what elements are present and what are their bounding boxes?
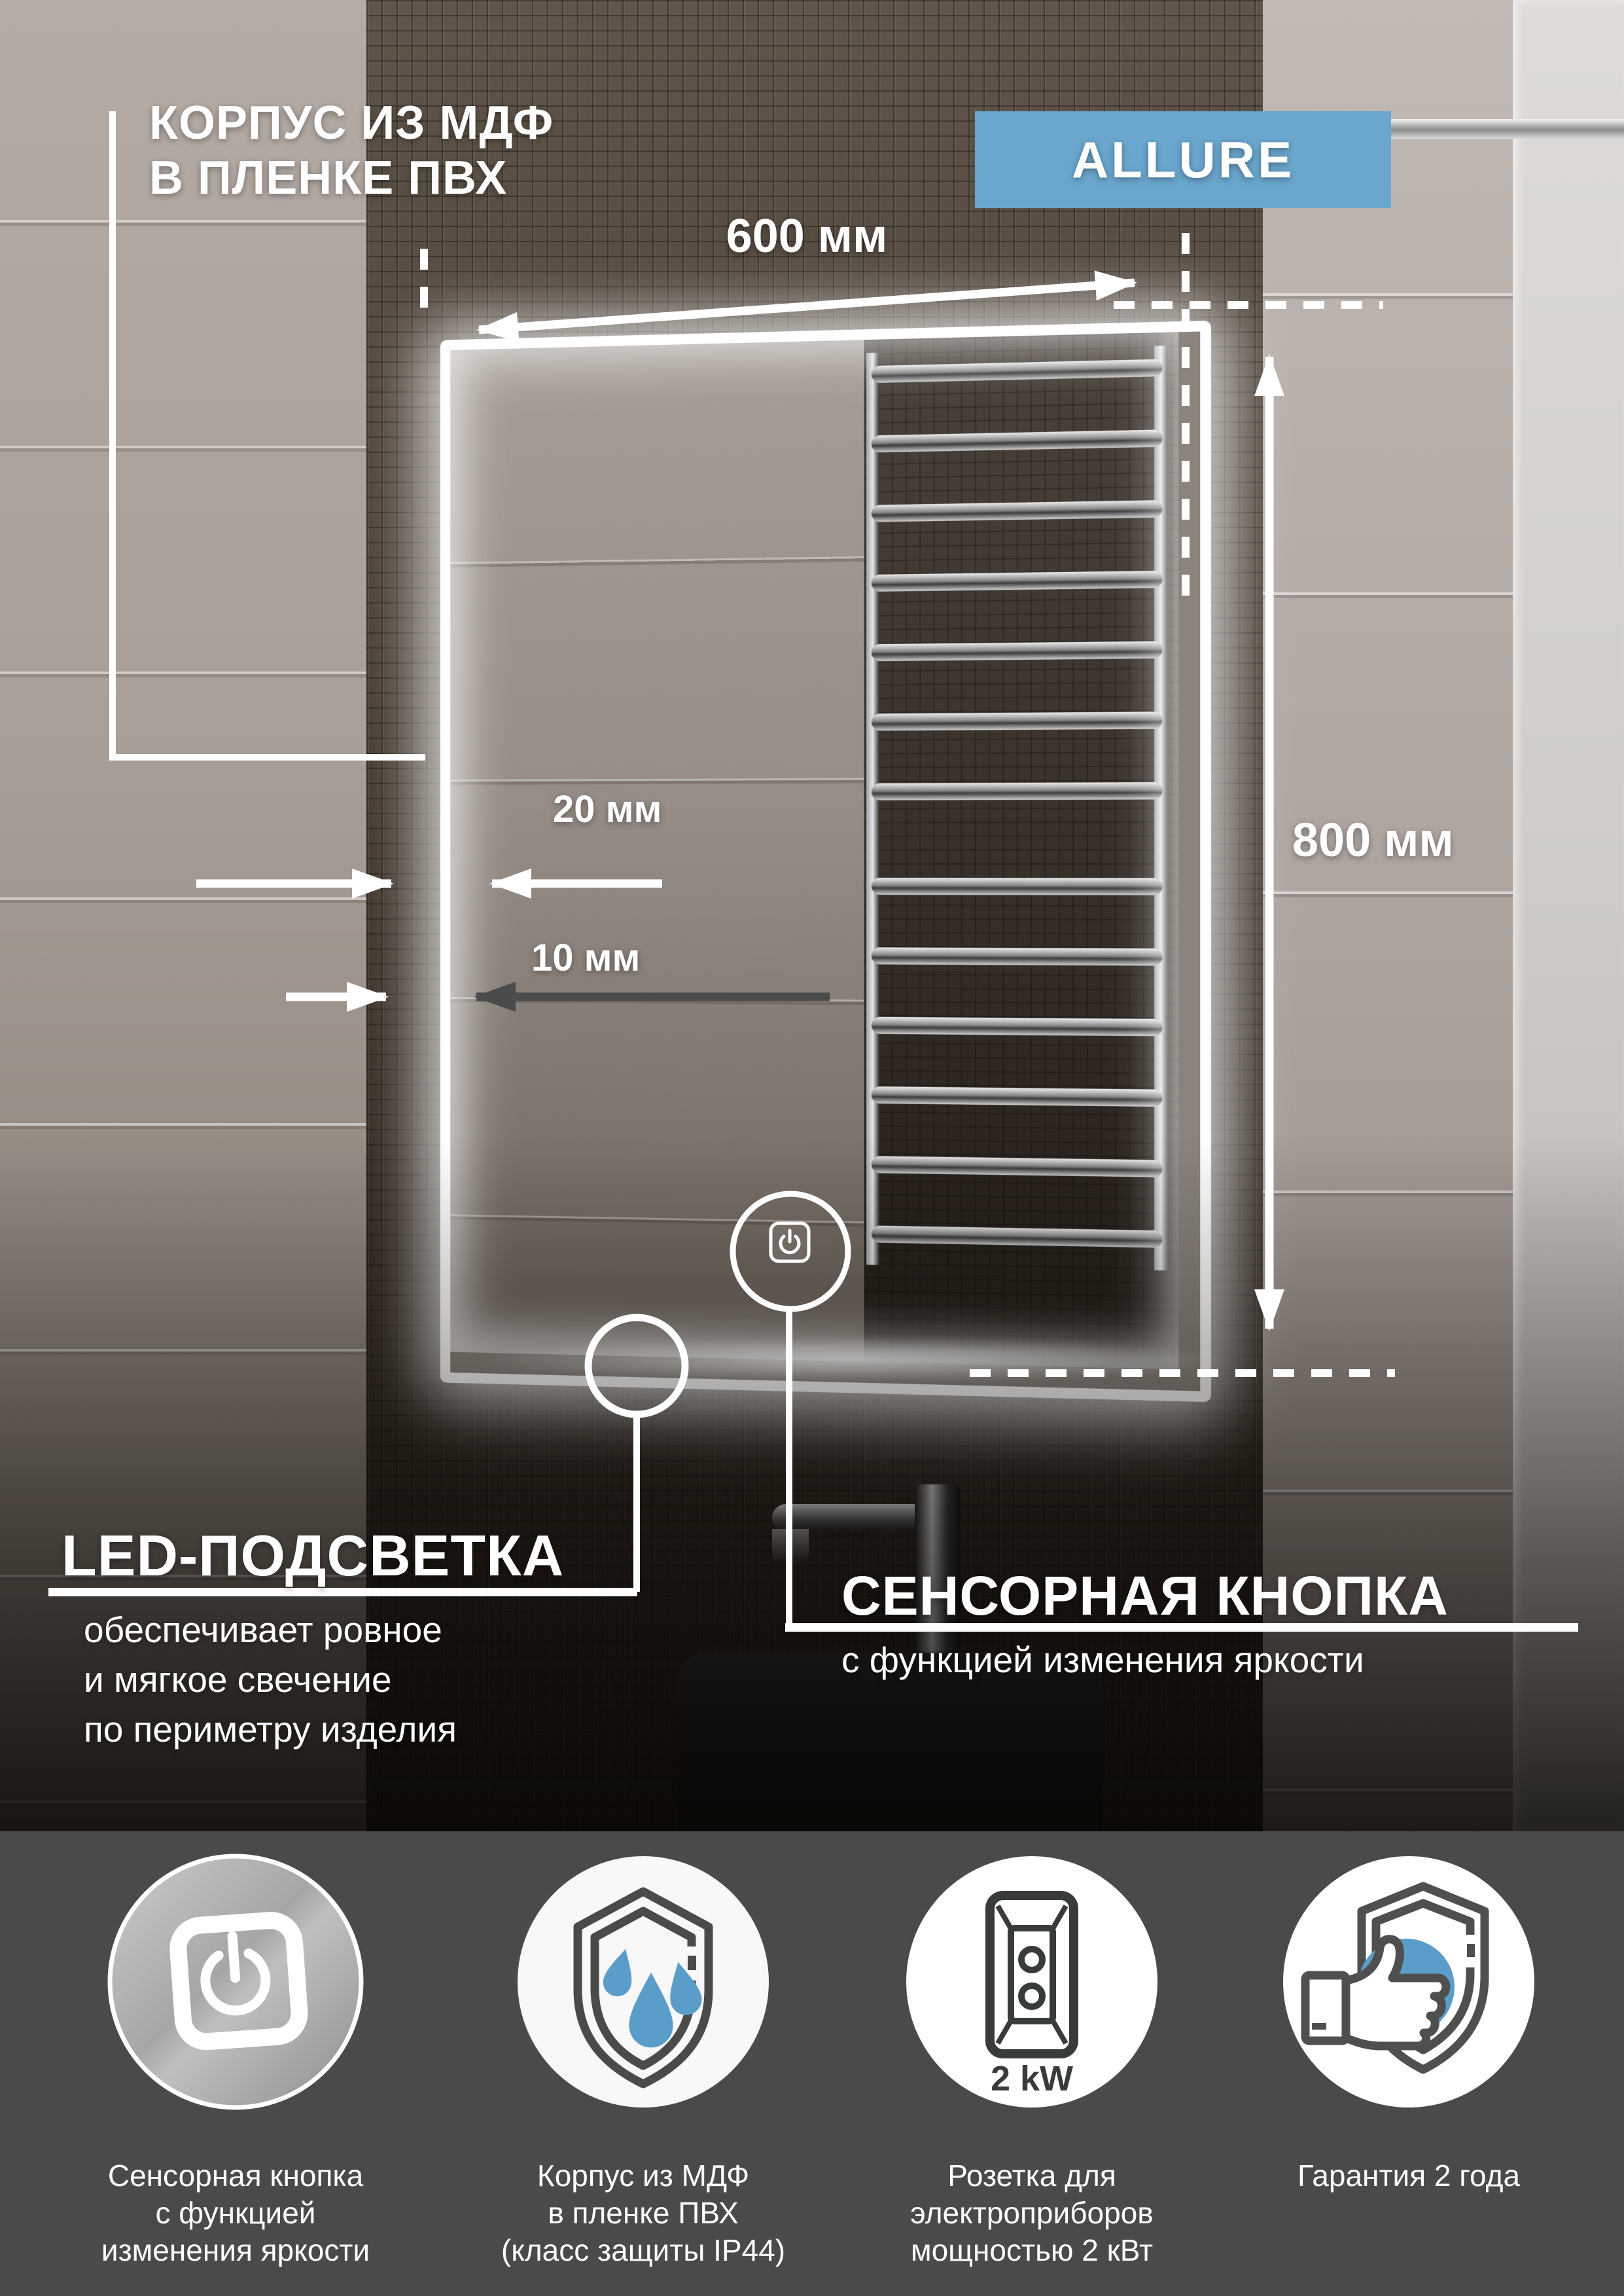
feature-socket: 2 kW Розетка для электроприборов мощност…: [901, 1851, 1163, 2270]
led-callout-description: обеспечивает ровное и мягкое свечение по…: [84, 1605, 457, 1754]
caption-line: Сенсорная кнопка: [52, 2157, 419, 2195]
width-dimension-label: 600 мм: [676, 209, 938, 263]
feature-caption: Розетка для электроприборов мощностью 2 …: [849, 2157, 1215, 2269]
caption-line: электроприборов: [849, 2195, 1215, 2232]
mdf-heading-line2: В ПЛЕНКЕ ПВХ: [149, 151, 554, 206]
height-dimension-label: 800 мм: [1292, 814, 1454, 867]
caption-line: с функцией: [52, 2195, 419, 2232]
width-arrow: [479, 283, 1135, 330]
feature-caption: Гарантия 2 года: [1226, 2157, 1592, 2195]
mdf-heading-line1: КОРПУС ИЗ МДФ: [149, 96, 554, 151]
feature-moisture-protection: Корпус из МДФ в пленке ПВХ (класс защиты…: [512, 1851, 774, 2270]
caption-line: изменения яркости: [52, 2232, 419, 2269]
brand-badge-label: ALLURE: [1072, 130, 1294, 190]
feature-caption: Корпус из МДФ в пленке ПВХ (класс защиты…: [460, 2157, 826, 2269]
mdf-callout-line: [113, 111, 425, 757]
feature-touch-button: Сенсорная кнопка с функцией изменения яр…: [105, 1851, 366, 2270]
led-desc-line2: и мягкое свечение: [84, 1655, 457, 1704]
led-callout-title: LED-ПОДСВЕТКА: [62, 1522, 564, 1589]
led-desc-line1: обеспечивает ровное: [84, 1605, 457, 1655]
caption-line: Гарантия 2 года: [1226, 2157, 1592, 2195]
touch-callout-subtitle: с функцией изменения яркости: [841, 1639, 1364, 1681]
mdf-heading: КОРПУС ИЗ МДФ В ПЛЕНКЕ ПВХ: [149, 96, 554, 206]
touch-callout-title: СЕНСОРНАЯ КНОПКА: [841, 1564, 1449, 1628]
caption-line: Розетка для: [849, 2157, 1215, 2195]
shield-water-icon: [512, 1851, 774, 2113]
bathroom-photo: КОРПУС ИЗ МДФ В ПЛЕНКЕ ПВХ ALLURE 600 мм…: [0, 0, 1624, 1831]
caption-line: Корпус из МДФ: [460, 2157, 826, 2195]
led-width-label: 20 мм: [553, 787, 662, 831]
socket-power-label: 2 kW: [991, 2059, 1073, 2098]
socket-icon: 2 kW: [901, 1851, 1163, 2113]
warranty-shield-icon: [1278, 1851, 1540, 2113]
led-desc-line3: по периметру изделия: [84, 1704, 457, 1754]
features-bar: Сенсорная кнопка с функцией изменения яр…: [0, 1831, 1624, 2296]
product-poster: КОРПУС ИЗ МДФ В ПЛЕНКЕ ПВХ ALLURE 600 мм…: [0, 0, 1624, 2296]
offset-label: 10 мм: [531, 936, 640, 980]
caption-line: (класс защиты IP44): [460, 2232, 826, 2269]
brand-badge: ALLURE: [975, 111, 1391, 208]
caption-line: мощностью 2 кВт: [849, 2232, 1215, 2269]
feature-caption: Сенсорная кнопка с функцией изменения яр…: [52, 2157, 419, 2269]
feature-warranty: Гарантия 2 года: [1278, 1851, 1540, 2270]
caption-line: в пленке ПВХ: [460, 2195, 826, 2232]
power-button-icon: [105, 1851, 366, 2113]
